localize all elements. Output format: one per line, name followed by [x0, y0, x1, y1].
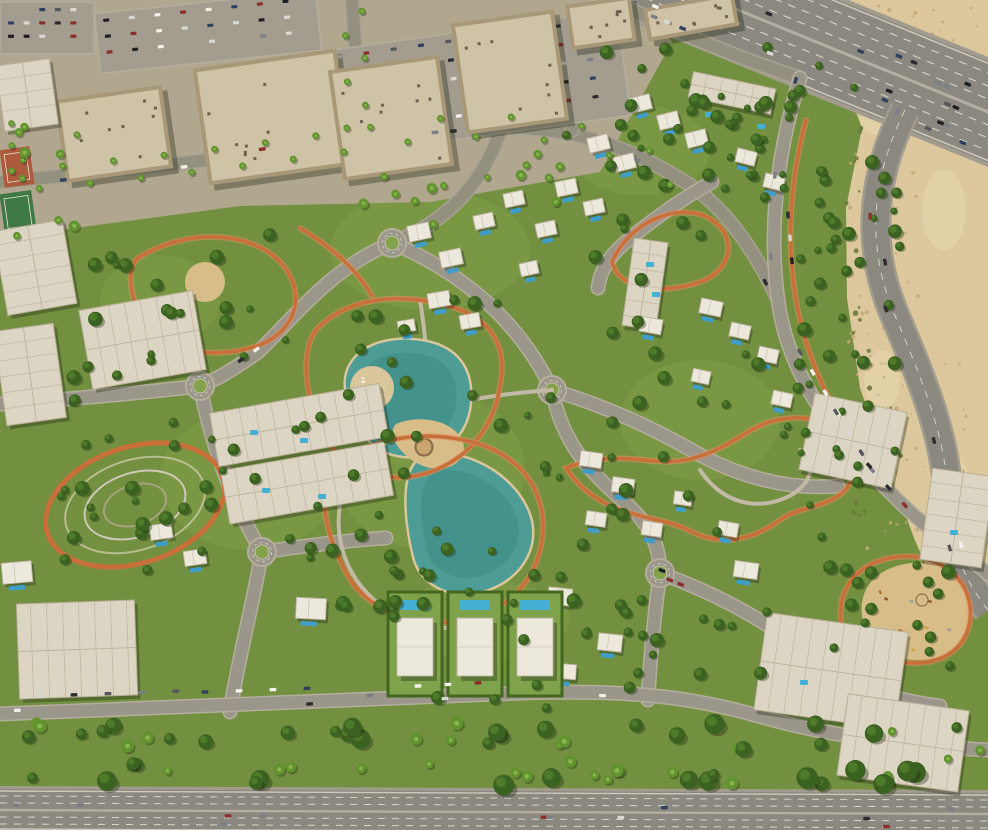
car: [270, 688, 277, 692]
villa: [579, 451, 605, 475]
car: [863, 817, 870, 820]
car: [790, 257, 794, 264]
villa: [641, 521, 665, 544]
car: [138, 691, 145, 695]
car: [303, 687, 310, 691]
roundabout: [646, 559, 674, 587]
apartment-block: [920, 468, 988, 572]
car: [868, 213, 872, 220]
bottom-arterial: [0, 791, 988, 830]
car: [474, 681, 481, 685]
car: [546, 816, 553, 819]
car: [769, 253, 773, 260]
midrise-building: [55, 85, 179, 188]
car: [202, 690, 209, 694]
villa: [733, 560, 761, 585]
aerial-masterplan-render: [0, 0, 988, 830]
villa: [585, 511, 609, 534]
car: [786, 211, 790, 218]
car: [617, 816, 624, 819]
car: [948, 807, 955, 810]
villa-plot: [448, 592, 502, 696]
car: [60, 178, 67, 182]
villa: [699, 298, 725, 323]
roundabout: [378, 229, 406, 257]
car: [883, 825, 890, 828]
car: [37, 694, 44, 698]
roundabout: [248, 538, 276, 566]
car: [76, 804, 83, 807]
car: [71, 693, 78, 697]
villa: [729, 322, 753, 346]
car: [431, 130, 438, 134]
villa: [691, 368, 713, 390]
car: [225, 814, 232, 817]
car: [788, 234, 792, 241]
car: [259, 814, 266, 817]
car: [444, 683, 451, 687]
car: [442, 697, 449, 701]
scene-canvas: [0, 0, 988, 830]
car: [366, 694, 373, 698]
villa: [597, 633, 625, 659]
car: [415, 684, 422, 688]
car: [450, 129, 457, 133]
car: [306, 702, 313, 706]
parking-lot: [0, 2, 94, 54]
car: [661, 806, 668, 809]
car: [172, 689, 179, 693]
car: [13, 803, 20, 806]
villa: [771, 390, 795, 414]
car: [236, 689, 243, 693]
car: [599, 694, 606, 698]
car: [14, 708, 21, 712]
car: [221, 822, 228, 825]
car: [105, 692, 112, 696]
apartment-block: [16, 600, 140, 703]
